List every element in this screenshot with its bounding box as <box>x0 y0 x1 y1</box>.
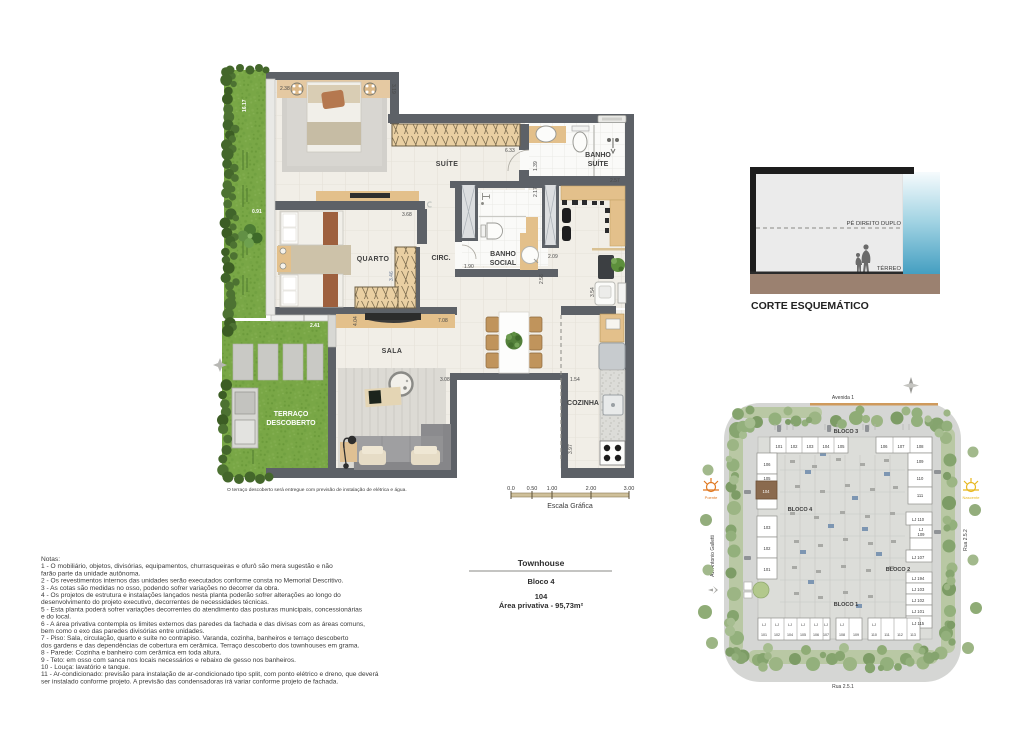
svg-text:LJ: LJ <box>775 623 779 627</box>
svg-text:105: 105 <box>838 444 846 449</box>
svg-text:ser instalado conforme projeto: ser instalado conforme projeto. A previs… <box>41 678 338 685</box>
svg-text:BANHO: BANHO <box>585 152 611 159</box>
svg-text:106: 106 <box>813 633 819 637</box>
svg-text:111: 111 <box>884 633 889 637</box>
svg-text:2.41: 2.41 <box>310 323 320 329</box>
svg-text:2.17: 2.17 <box>533 187 539 197</box>
svg-text:104: 104 <box>535 592 548 601</box>
svg-text:110: 110 <box>871 633 877 637</box>
svg-text:1.54: 1.54 <box>570 377 580 383</box>
svg-text:111: 111 <box>917 493 924 498</box>
svg-text:Avenida 1: Avenida 1 <box>832 395 854 401</box>
svg-text:104: 104 <box>763 489 771 494</box>
svg-text:3 - As cotas são medidas no os: 3 - As cotas são medidas no osso, podend… <box>41 585 279 592</box>
svg-text:6 - A área privativa contempla: 6 - A área privativa contempla os limite… <box>41 621 365 628</box>
svg-text:LJ: LJ <box>872 623 876 627</box>
svg-text:105: 105 <box>764 476 772 481</box>
svg-text:SOCIAL: SOCIAL <box>490 260 517 267</box>
svg-text:SUÍTE: SUÍTE <box>588 159 609 168</box>
svg-text:LJ: LJ <box>788 623 792 627</box>
svg-text:LJ 102: LJ 102 <box>912 598 925 603</box>
svg-text:3.46: 3.46 <box>389 271 395 281</box>
svg-text:1 - O mobiliário, objetos, div: 1 - O mobiliário, objetos, divisórias, e… <box>41 563 333 570</box>
svg-text:7 - Piso: Sala, circulação, qu: 7 - Piso: Sala, circulação, quarto e suí… <box>41 635 349 642</box>
svg-text:8 - Parede: Cozinha e banheiro: 8 - Parede: Cozinha e banheiro com cerâm… <box>41 650 221 657</box>
svg-text:5 - Esta planta poderá sofrer: 5 - Esta planta poderá sofrer variações … <box>41 606 363 613</box>
svg-text:2.09: 2.09 <box>548 254 558 260</box>
svg-text:112: 112 <box>897 633 903 637</box>
svg-text:CORTE ESQUEMÁTICO: CORTE ESQUEMÁTICO <box>751 299 869 312</box>
svg-text:bem como o exo das paredes div: bem como o exo das paredes divisórias en… <box>41 628 205 635</box>
svg-text:BLOCO 1: BLOCO 1 <box>834 602 858 608</box>
svg-text:104: 104 <box>787 633 793 637</box>
svg-text:105: 105 <box>800 633 806 637</box>
svg-text:10 - Louça: lavatório e tanque: 10 - Louça: lavatório e tanque. <box>41 664 130 671</box>
svg-text:LJ 101: LJ 101 <box>912 609 925 614</box>
svg-text:113: 113 <box>910 633 916 637</box>
svg-text:2.38: 2.38 <box>280 86 290 92</box>
svg-text:3.19: 3.19 <box>390 84 396 94</box>
svg-text:dos gardens e das dependências: dos gardens e das dependências de cobert… <box>41 642 360 649</box>
svg-text:O terraço descoberto será entr: O terraço descoberto será entregue com p… <box>227 487 407 493</box>
svg-text:Rua 2.5.1: Rua 2.5.1 <box>832 684 854 690</box>
svg-text:LJ: LJ <box>824 623 828 627</box>
svg-text:COZINHA: COZINHA <box>567 400 599 407</box>
svg-text:Notas:: Notas: <box>41 556 60 563</box>
svg-text:109: 109 <box>853 633 859 637</box>
svg-text:LJ 103: LJ 103 <box>912 587 925 592</box>
svg-text:farão parte da unidade autônom: farão parte da unidade autônoma. <box>41 570 141 577</box>
svg-text:PÉ DIREITO DUPLO: PÉ DIREITO DUPLO <box>847 220 902 227</box>
svg-text:LJ 107: LJ 107 <box>912 555 925 560</box>
svg-text:3.08: 3.08 <box>440 377 450 383</box>
svg-text:LJ: LJ <box>840 623 844 627</box>
svg-text:4 - Os projetos de estrutura e: 4 - Os projetos de estrutura e instalaçõ… <box>41 592 341 599</box>
svg-text:110: 110 <box>917 476 924 481</box>
svg-text:QUARTO: QUARTO <box>357 256 390 263</box>
svg-text:CIRC.: CIRC. <box>431 255 450 262</box>
svg-text:101: 101 <box>764 567 772 572</box>
svg-text:BANHO: BANHO <box>490 251 516 258</box>
svg-text:1.90: 1.90 <box>464 264 474 270</box>
svg-text:Townhouse: Townhouse <box>518 558 565 568</box>
svg-text:Nascente: Nascente <box>963 495 981 500</box>
svg-text:108: 108 <box>917 444 925 449</box>
svg-text:102: 102 <box>791 444 799 449</box>
svg-text:LJ: LJ <box>801 623 805 627</box>
svg-text:3.97: 3.97 <box>568 444 574 454</box>
svg-text:107: 107 <box>823 633 829 637</box>
svg-text:106: 106 <box>764 462 772 467</box>
svg-text:108: 108 <box>839 633 845 637</box>
svg-text:0.91: 0.91 <box>252 209 262 215</box>
svg-text:11 - Ar-condicionado: previsão: 11 - Ar-condicionado: previsão para inst… <box>41 671 379 678</box>
svg-text:104: 104 <box>823 444 831 449</box>
svg-text:SALA: SALA <box>382 348 403 355</box>
svg-text:2.57: 2.57 <box>610 178 620 184</box>
svg-text:TERRAÇO: TERRAÇO <box>274 411 309 418</box>
svg-text:2.56: 2.56 <box>539 274 545 284</box>
svg-text:BLOCO 2: BLOCO 2 <box>886 567 910 573</box>
svg-text:7.08: 7.08 <box>438 318 448 324</box>
svg-text:103: 103 <box>807 444 815 449</box>
svg-text:102: 102 <box>764 546 772 551</box>
svg-text:106: 106 <box>881 444 889 449</box>
svg-text:109: 109 <box>917 459 925 464</box>
svg-text:4.04: 4.04 <box>353 316 359 326</box>
svg-text:BLOCO 4: BLOCO 4 <box>788 507 813 513</box>
svg-text:Bloco 4: Bloco 4 <box>527 577 555 586</box>
svg-text:6.33: 6.33 <box>505 148 515 154</box>
svg-text:Rua 2.5.2: Rua 2.5.2 <box>963 529 969 551</box>
svg-text:103: 103 <box>764 525 772 530</box>
svg-text:Escala Gráfica: Escala Gráfica <box>547 503 593 510</box>
svg-text:101: 101 <box>761 633 767 637</box>
svg-text:Poente: Poente <box>705 495 718 500</box>
svg-text:16.17: 16.17 <box>242 99 248 112</box>
svg-text:SUÍTE: SUÍTE <box>436 159 459 168</box>
svg-text:102: 102 <box>774 633 780 637</box>
svg-text:1.39: 1.39 <box>533 161 539 171</box>
svg-text:desenvolvimento do projeto exe: desenvolvimento do projeto executivo, de… <box>41 599 269 606</box>
svg-text:LJ: LJ <box>762 623 766 627</box>
svg-text:9 - Teto: em osso com sanca no: 9 - Teto: em osso com sanca nos locais n… <box>41 657 296 664</box>
svg-text:Área privativa - 95,73m²: Área privativa - 95,73m² <box>499 601 584 610</box>
svg-text:e do local.: e do local. <box>41 614 71 621</box>
svg-text:DESCOBERTO: DESCOBERTO <box>266 420 316 427</box>
svg-text:107: 107 <box>898 444 906 449</box>
svg-text:2 - Os revestimentos internos: 2 - Os revestimentos internos das unidad… <box>41 578 344 585</box>
svg-text:LJ 110: LJ 110 <box>912 517 925 522</box>
svg-text:109: 109 <box>918 532 926 537</box>
svg-text:101: 101 <box>776 444 784 449</box>
svg-text:LJ: LJ <box>814 623 818 627</box>
svg-text:3.54: 3.54 <box>590 287 596 297</box>
svg-text:TÉRREO: TÉRREO <box>877 265 902 272</box>
svg-text:LJ 194: LJ 194 <box>912 576 925 581</box>
svg-text:LJ 115: LJ 115 <box>912 621 925 626</box>
svg-text:BLOCO 3: BLOCO 3 <box>834 429 858 435</box>
svg-text:3.68: 3.68 <box>402 212 412 218</box>
